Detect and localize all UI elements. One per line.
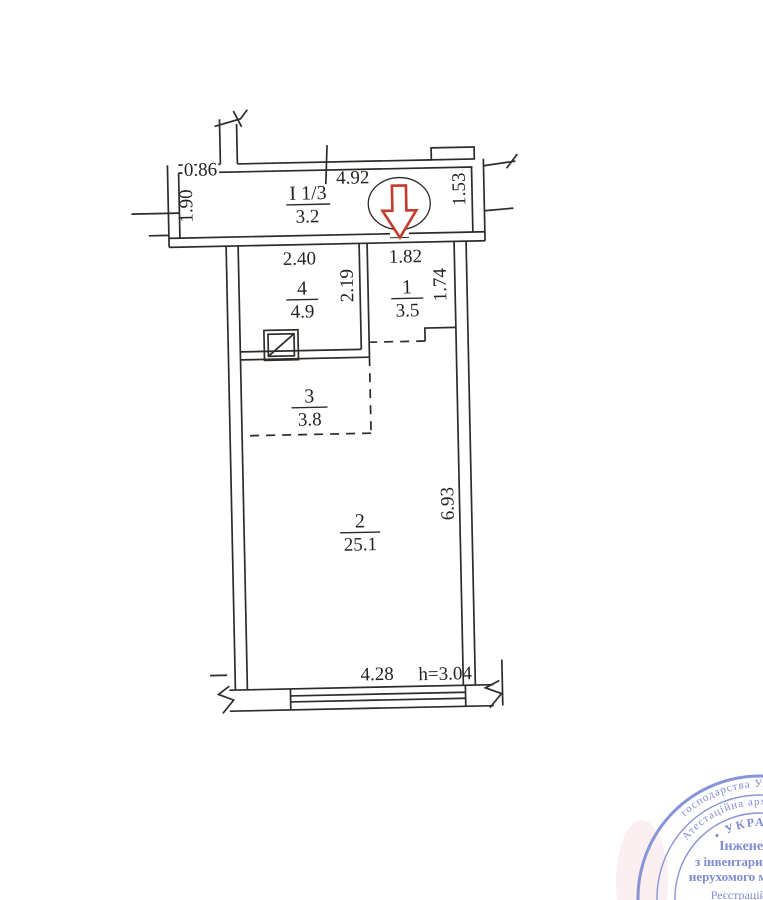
wall-sill: [431, 147, 474, 160]
wall-line: [237, 160, 431, 164]
wall-line: [425, 327, 456, 341]
room3-area: 3.8: [298, 409, 322, 430]
wall-line: [454, 241, 463, 685]
wall-line: [226, 246, 235, 690]
wall-line: [409, 232, 485, 234]
scanned-floor-plan-page: { "plan": { "corridor": { "number": "I 1…: [0, 0, 763, 900]
registration-stamp: господарства України • Мініс Атестаційна…: [616, 776, 763, 900]
dim-2.40: 2.40: [283, 248, 317, 270]
dashed-boundary: [369, 357, 371, 433]
room4-number: 4: [297, 277, 307, 299]
dim-1.74: 1.74: [430, 267, 452, 301]
stamp-title-line3: нерухомого майна: [689, 869, 763, 884]
wall-line: [237, 124, 238, 164]
wall-line: [219, 119, 220, 164]
wall-line: [367, 243, 369, 357]
wall-line: [241, 357, 370, 360]
entrance-marker: [368, 177, 431, 238]
room2-area: 25.1: [344, 534, 378, 556]
dashed-boundary: [370, 341, 425, 342]
room4-area: 4.9: [290, 301, 314, 322]
wall-line: [483, 159, 485, 241]
room1-number: 1: [402, 276, 412, 298]
fraction-bar: [292, 407, 328, 408]
dim-1.82: 1.82: [389, 246, 423, 268]
stamp-registry-line: Реєстраційний: [711, 888, 763, 900]
fraction-bar: [286, 204, 330, 205]
dim-4.92: 4.92: [336, 167, 370, 189]
dim-0.86: 0.86: [184, 159, 218, 181]
fraction-bar: [391, 298, 423, 299]
floor-plan-drawing: 0.86 4.92 1.90 1.53 I 1/3 3.2 2.40 1.82 …: [0, 0, 763, 900]
room2-number: 2: [355, 510, 365, 532]
wall-line: [169, 241, 485, 248]
dim-tick: [484, 208, 513, 211]
dim-6.93: 6.93: [437, 487, 459, 521]
wall-line: [359, 243, 361, 349]
dim-tick: [325, 145, 328, 184]
wall-line: [169, 234, 390, 239]
dim-arrow: [506, 154, 517, 168]
stamp-title-line1: Інженер: [719, 839, 763, 854]
stamp-title-line2: з інвентаризації: [695, 854, 763, 869]
room1-area: 3.5: [395, 300, 419, 321]
wall-line: [229, 685, 493, 691]
wall-line: [230, 706, 494, 712]
stamp-scan-artifact: [616, 820, 668, 900]
vent-diagonal: [268, 334, 294, 357]
wall-line: [240, 349, 361, 352]
wall-line: [466, 241, 475, 685]
dim-1.53: 1.53: [449, 172, 471, 206]
dim-2.19: 2.19: [337, 269, 359, 303]
fraction-bar: [286, 299, 318, 300]
entrance-arrow-icon: [382, 185, 417, 238]
dim-tick: [502, 659, 503, 705]
wall-line: [238, 246, 247, 690]
wall-line: [472, 167, 473, 232]
ceiling-height: h=3.04: [418, 663, 472, 685]
room3-number: 3: [304, 385, 314, 407]
dashed-boundary: [250, 433, 371, 436]
window-line: [291, 698, 466, 702]
window-line: [291, 692, 466, 696]
plan-group: 0.86 4.92 1.90 1.53 I 1/3 3.2 2.40 1.82 …: [129, 104, 529, 715]
dim-tick: [131, 213, 179, 214]
dim-1.90: 1.90: [176, 189, 198, 223]
corridor-number: I 1/3: [289, 182, 327, 205]
fraction-bar: [340, 532, 380, 533]
dim-4.28: 4.28: [360, 664, 394, 686]
corridor-area: 3.2: [295, 206, 319, 227]
